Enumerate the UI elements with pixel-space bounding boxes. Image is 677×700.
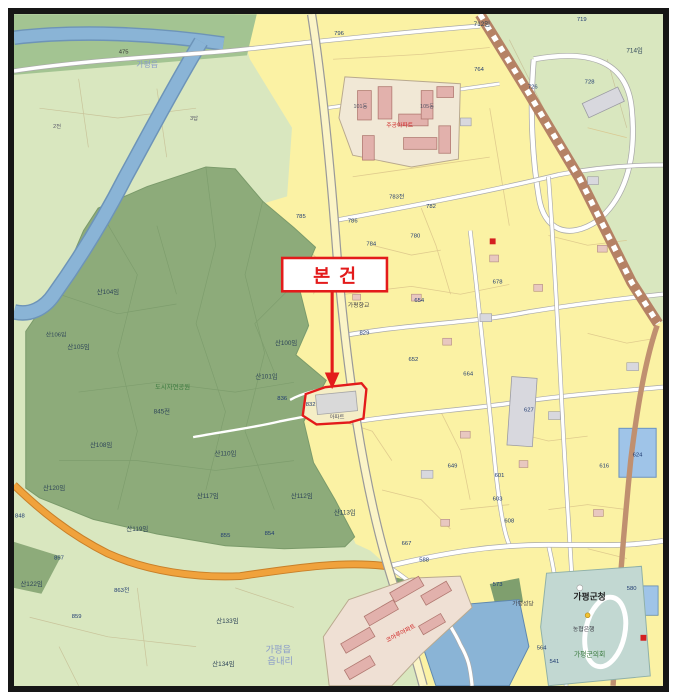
map-label: 728: [585, 80, 595, 86]
map-label: 601: [495, 473, 505, 479]
map-label: 664: [463, 371, 474, 377]
map-label: 854: [265, 531, 276, 537]
map-label: 아파트: [330, 413, 345, 421]
map-label: 산122임: [20, 579, 42, 588]
map-label: 649: [448, 463, 458, 469]
map-label: 산134임: [212, 659, 234, 668]
map-label: 712임: [474, 20, 491, 28]
map-label: 832: [306, 402, 316, 408]
map-label: 859: [72, 614, 82, 620]
map-label: 산106임: [46, 330, 67, 338]
map-label: 산105임: [67, 342, 89, 351]
map-label: 863전: [114, 586, 129, 594]
map-label: 주공아파트: [386, 121, 414, 129]
map-label: 564: [537, 646, 548, 652]
map-label: 836: [277, 396, 287, 402]
map-label: 가평성당: [512, 599, 534, 607]
map-label: 농협은행: [573, 625, 595, 633]
map-label: 785: [296, 214, 307, 220]
map-label: 678: [493, 279, 503, 285]
map-label: 산110임: [215, 449, 237, 458]
subject-callout-label: 본건: [313, 265, 365, 286]
map-label: 2전: [53, 122, 61, 130]
map-label: 654: [414, 298, 425, 304]
map-label: 가평읍: [265, 644, 291, 654]
map-label: 784: [366, 241, 377, 247]
map-label: 산117임: [197, 491, 219, 500]
map-label: 829: [360, 330, 370, 336]
map-label: 산113임: [334, 507, 356, 516]
map-label: 가평읍: [136, 59, 158, 69]
county-office: [541, 566, 651, 685]
map-label: 101동: [354, 103, 368, 110]
map-label: 산120임: [43, 483, 65, 492]
map-label: 588: [419, 557, 429, 563]
map-label: 603: [493, 497, 503, 503]
map-label: 726: [528, 85, 538, 91]
map-label: 가평향교: [348, 301, 370, 309]
map-label: 783전: [389, 192, 404, 200]
map-label: 산101임: [255, 371, 277, 380]
map-label: 616: [599, 463, 609, 469]
map-label: 718: [594, 14, 604, 15]
map-label: 855: [221, 533, 232, 539]
map-label: 845전: [154, 407, 171, 416]
map-label: 573: [493, 582, 503, 588]
map-label: 857: [54, 555, 64, 561]
map-screenshot: 가평읍4752전3답796712임719718726728714임764산104…: [0, 0, 677, 700]
map-label: 780: [410, 233, 421, 239]
map-label: 796: [334, 31, 344, 37]
map-label: 608: [504, 518, 514, 524]
poi-marker: [490, 238, 496, 244]
map-label: 산133임: [216, 616, 238, 625]
map-label: 475: [119, 49, 130, 55]
map-label: 764: [474, 67, 485, 73]
map-border-frame: 가평읍4752전3답796712임719718726728714임764산104…: [8, 8, 669, 692]
map-label: 541: [549, 659, 559, 665]
map-label: 읍내리: [267, 656, 293, 666]
map-canvas: 가평읍4752전3답796712임719718726728714임764산104…: [14, 14, 663, 686]
map-label: 산108임: [90, 440, 112, 449]
map-label: 산100임: [275, 338, 297, 347]
map-label: 산119임: [126, 524, 148, 533]
map-label: 580: [627, 586, 638, 592]
map-label: 도시자연공원: [155, 382, 190, 391]
map-label: 가평군청: [573, 591, 605, 602]
map-label: 627: [524, 408, 534, 414]
map-label: 667: [402, 541, 412, 547]
map-label: 가평군의회: [574, 649, 605, 658]
map-label: 782: [426, 204, 436, 210]
map-label: 3답: [190, 115, 198, 122]
map-label: 719: [577, 17, 587, 23]
poi-marker: [640, 635, 646, 641]
map-label: 624: [633, 453, 644, 459]
map-label: 105동: [420, 103, 434, 110]
map-label: 산112임: [291, 491, 313, 500]
map-label: 714임: [626, 46, 643, 54]
map-label: 산104임: [97, 287, 119, 296]
map-label: 848: [15, 513, 25, 519]
map-label: 652: [408, 357, 418, 363]
map-label: 786: [348, 219, 358, 225]
